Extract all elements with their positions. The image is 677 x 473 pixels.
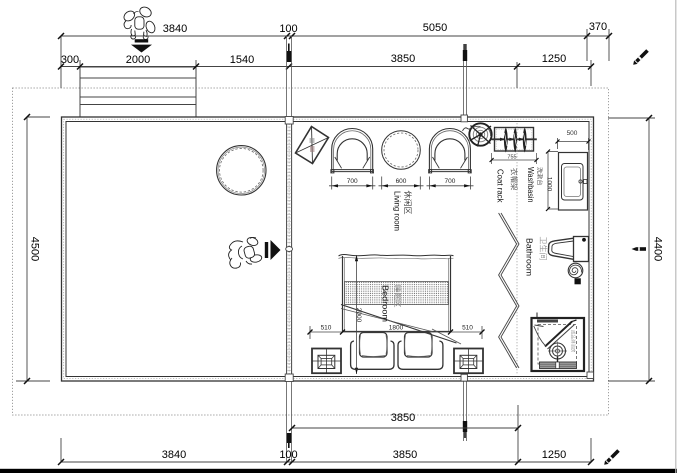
svg-text:Living room: Living room bbox=[393, 191, 402, 231]
svg-text:100: 100 bbox=[279, 449, 297, 461]
svg-text:600: 600 bbox=[396, 178, 407, 185]
svg-text:1250: 1250 bbox=[542, 53, 566, 65]
svg-text:510: 510 bbox=[321, 325, 332, 332]
svg-text:3850: 3850 bbox=[391, 412, 415, 424]
svg-text:5050: 5050 bbox=[423, 22, 447, 34]
svg-text:755: 755 bbox=[507, 154, 516, 160]
svg-text:睡眠区: 睡眠区 bbox=[393, 285, 402, 308]
svg-text:Coat rack: Coat rack bbox=[496, 169, 505, 203]
svg-text:成品淋浴房: 成品淋浴房 bbox=[570, 330, 577, 353]
svg-text:1250: 1250 bbox=[542, 449, 566, 461]
svg-text:Washbasin: Washbasin bbox=[526, 167, 535, 203]
svg-text:1800: 1800 bbox=[389, 325, 404, 332]
svg-text:100: 100 bbox=[279, 23, 297, 35]
svg-text:3850: 3850 bbox=[391, 53, 415, 65]
svg-text:洗漱台: 洗漱台 bbox=[536, 167, 544, 186]
svg-text:Bathroom: Bathroom bbox=[525, 238, 535, 276]
svg-text:370: 370 bbox=[589, 21, 607, 33]
svg-text:3850: 3850 bbox=[393, 449, 417, 461]
svg-text:休闲区: 休闲区 bbox=[403, 191, 413, 215]
svg-text:300: 300 bbox=[61, 54, 79, 66]
svg-text:500: 500 bbox=[567, 130, 578, 137]
svg-text:2000: 2000 bbox=[355, 308, 362, 323]
svg-text:4500: 4500 bbox=[29, 237, 41, 261]
svg-text:510: 510 bbox=[462, 325, 473, 332]
svg-text:1540: 1540 bbox=[230, 54, 254, 66]
svg-text:3840: 3840 bbox=[162, 449, 186, 461]
svg-text:3840: 3840 bbox=[163, 23, 187, 35]
svg-text:2000: 2000 bbox=[126, 54, 150, 66]
svg-text:1000: 1000 bbox=[546, 177, 553, 192]
svg-text:卫生间: 卫生间 bbox=[539, 237, 549, 261]
svg-text:Bedroom: Bedroom bbox=[381, 285, 390, 322]
svg-text:4400: 4400 bbox=[652, 237, 664, 261]
svg-text:700: 700 bbox=[444, 178, 455, 185]
svg-text:700: 700 bbox=[347, 178, 358, 185]
svg-text:衣帽架: 衣帽架 bbox=[510, 168, 520, 191]
